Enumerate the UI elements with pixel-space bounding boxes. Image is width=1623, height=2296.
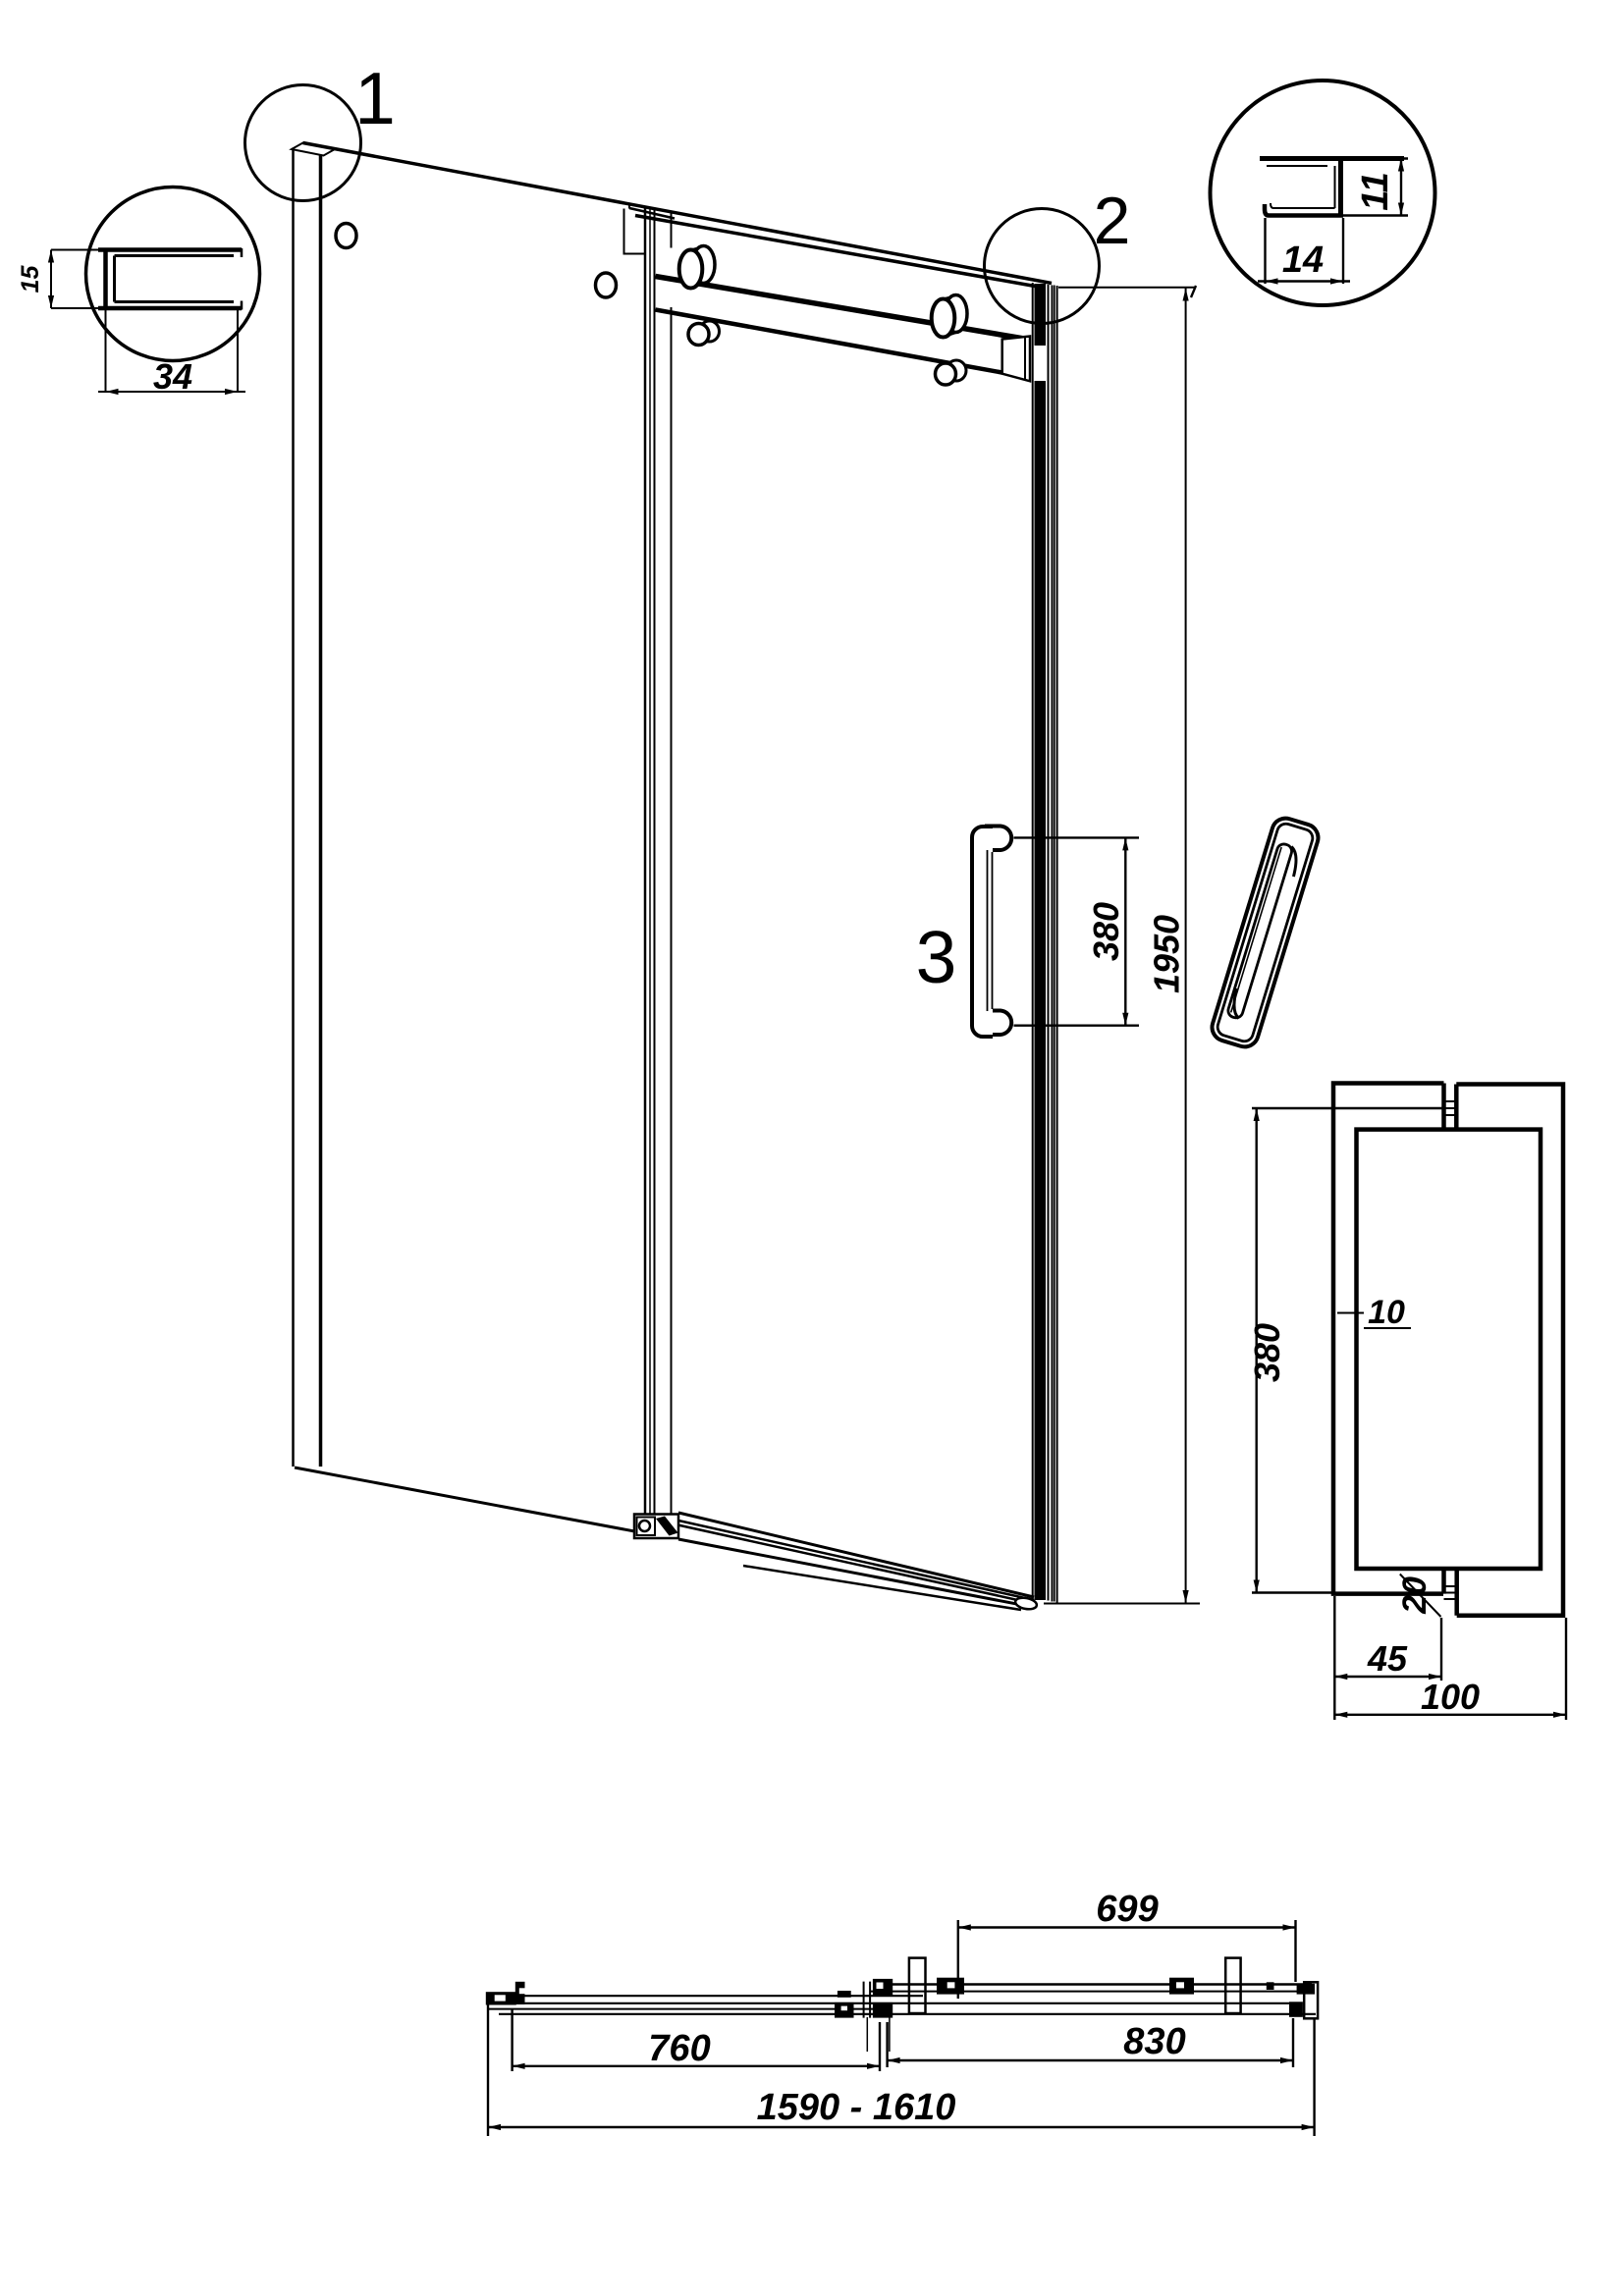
svg-text:10: 10: [1368, 1294, 1405, 1331]
svg-text:1950: 1950: [1147, 915, 1187, 993]
svg-text:14: 14: [1282, 240, 1324, 281]
svg-text:830: 830: [1123, 2021, 1185, 2062]
svg-text:100: 100: [1421, 1677, 1480, 1717]
svg-text:1: 1: [354, 57, 396, 139]
svg-text:760: 760: [648, 2028, 710, 2069]
svg-text:380: 380: [1247, 1323, 1287, 1382]
svg-text:699: 699: [1096, 1889, 1158, 1930]
svg-text:11: 11: [1355, 172, 1396, 210]
svg-text:20: 20: [1396, 1576, 1434, 1615]
svg-text:34: 34: [153, 356, 192, 397]
svg-text:15: 15: [17, 265, 44, 294]
svg-text:380: 380: [1086, 902, 1126, 961]
svg-text:3: 3: [916, 916, 957, 998]
svg-text:45: 45: [1367, 1638, 1408, 1679]
svg-text:2: 2: [1094, 184, 1131, 258]
svg-text:1590 - 1610: 1590 - 1610: [757, 2087, 956, 2128]
